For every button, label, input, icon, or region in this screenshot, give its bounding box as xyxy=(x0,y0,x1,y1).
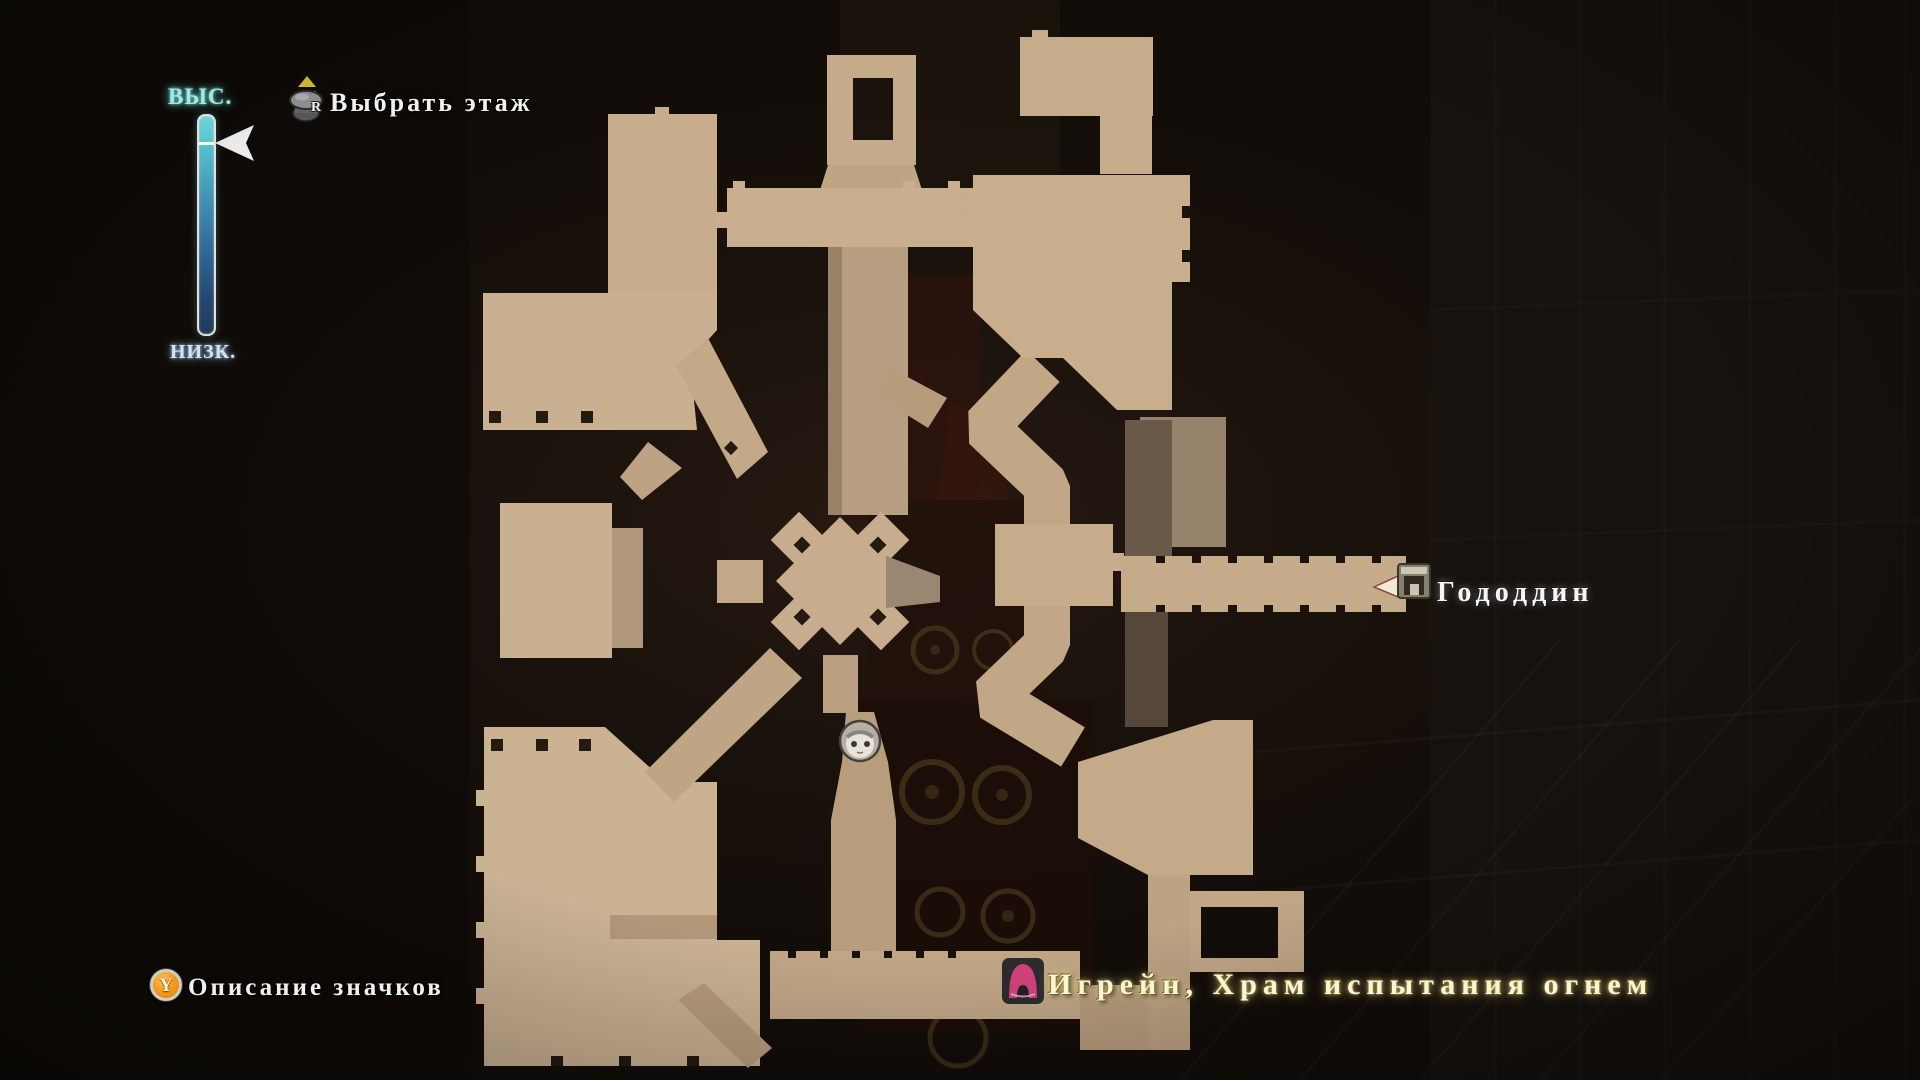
floor-select-hint[interactable]: Выбрать этаж xyxy=(330,88,533,118)
map-corridor-gododdin xyxy=(1121,556,1406,612)
y-button-icon[interactable]: Y xyxy=(150,969,182,1001)
map-room xyxy=(1020,37,1153,116)
map-room xyxy=(608,114,717,306)
map-room xyxy=(500,503,612,658)
elevation-low-label: НИЗК. xyxy=(170,341,236,364)
right-stick-button-label: R xyxy=(311,100,321,116)
map-corridor xyxy=(727,188,985,247)
map-room xyxy=(995,524,1113,606)
elevation-high-label: ВЫС. xyxy=(168,84,232,110)
player-icon xyxy=(840,721,880,761)
gododdin-marker-label: Гододдин xyxy=(1437,577,1594,609)
dungeon-map-canvas xyxy=(0,0,1920,1080)
elevation-gauge-tick xyxy=(199,142,214,145)
legend-hint[interactable]: Описание значков xyxy=(188,974,444,1002)
y-button-label: Y xyxy=(153,972,179,999)
location-title: Игрейн, Храм испытания огнем xyxy=(1048,968,1653,1002)
temple-icon xyxy=(1002,958,1044,1004)
map-screen: ВЫС. НИЗК. R Выбрать этаж Гододдин Y Опи… xyxy=(0,0,1920,1080)
gate-icon xyxy=(1398,564,1430,598)
map-room xyxy=(717,560,763,603)
elevation-gauge[interactable] xyxy=(197,114,216,336)
